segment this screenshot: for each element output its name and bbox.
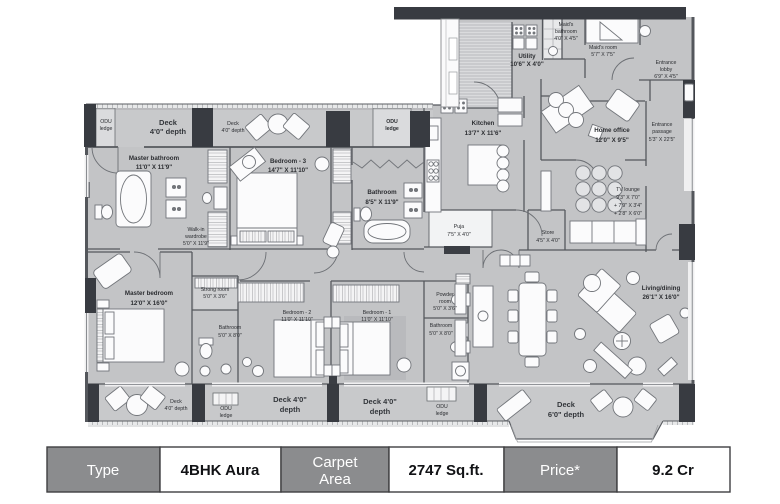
- svg-text:Walk-in: Walk-in: [187, 227, 204, 233]
- svg-text:5'0" X 11'9": 5'0" X 11'9": [183, 241, 209, 247]
- svg-text:Deck: Deck: [159, 118, 178, 127]
- svg-text:14'7" X 11'10": 14'7" X 11'10": [268, 167, 308, 174]
- svg-text:5'0" X 3'6": 5'0" X 3'6": [203, 294, 227, 300]
- svg-text:8'5" X 11'9": 8'5" X 11'9": [365, 199, 398, 206]
- svg-text:ODU: ODU: [100, 119, 112, 125]
- svg-text:Bedroom - 3: Bedroom - 3: [270, 158, 307, 165]
- svg-text:12'0" X 16'0": 12'0" X 16'0": [130, 300, 167, 307]
- svg-text:4'0" depth: 4'0" depth: [150, 127, 187, 136]
- svg-text:depth: depth: [370, 407, 391, 416]
- svg-text:Carpet: Carpet: [312, 454, 358, 471]
- svg-text:ledge: ledge: [436, 411, 449, 417]
- svg-text:5'0" X 8'0": 5'0" X 8'0": [429, 331, 453, 337]
- svg-text:Master bedroom: Master bedroom: [125, 290, 174, 297]
- svg-text:passage: passage: [652, 129, 672, 135]
- svg-text:11'0" X 11'9": 11'0" X 11'9": [136, 164, 172, 171]
- svg-text:Store: Store: [542, 230, 555, 236]
- svg-text:wardrobe: wardrobe: [185, 234, 207, 240]
- svg-text:Deck 4'0": Deck 4'0": [363, 397, 397, 406]
- svg-text:ODU: ODU: [220, 406, 232, 412]
- svg-text:ledge: ledge: [100, 126, 113, 132]
- svg-text:Area: Area: [319, 471, 351, 488]
- svg-text:5'0" X 8'0": 5'0" X 8'0": [218, 333, 242, 339]
- svg-text:Home office: Home office: [594, 127, 630, 134]
- svg-text:10'6" X 4'0": 10'6" X 4'0": [510, 61, 544, 68]
- svg-text:ledge: ledge: [220, 413, 233, 419]
- svg-text:11'0" X 11'10": 11'0" X 11'10": [281, 317, 313, 323]
- svg-text:Deck: Deck: [170, 399, 182, 405]
- svg-text:Bathroom: Bathroom: [367, 189, 397, 196]
- svg-text:5'3" X 22'5": 5'3" X 22'5": [649, 137, 676, 143]
- svg-text:13'7" X 11'6": 13'7" X 11'6": [465, 130, 502, 137]
- svg-text:TV lounge: TV lounge: [616, 187, 640, 193]
- svg-text:6'0" depth: 6'0" depth: [548, 410, 585, 419]
- svg-text:Bathroom: Bathroom: [219, 325, 242, 331]
- svg-text:Maid's: Maid's: [559, 22, 574, 28]
- svg-text:2747 Sq.ft.: 2747 Sq.ft.: [408, 462, 483, 479]
- svg-text:Puja: Puja: [454, 224, 464, 230]
- svg-text:ODU: ODU: [386, 119, 398, 125]
- svg-text:11'0" X 11'10": 11'0" X 11'10": [361, 317, 393, 323]
- svg-text:Entrance: Entrance: [652, 122, 673, 128]
- svg-text:Master bathroom: Master bathroom: [129, 155, 180, 162]
- svg-text:Deck: Deck: [557, 400, 576, 409]
- svg-text:+ 7'9" X 3'4": + 7'9" X 3'4": [614, 203, 642, 209]
- svg-text:Living/dining: Living/dining: [642, 285, 681, 292]
- svg-text:depth: depth: [280, 405, 301, 414]
- svg-text:4'0" X 4'5": 4'0" X 4'5": [554, 36, 578, 42]
- svg-text:7'5" X 4'0": 7'5" X 4'0": [447, 232, 471, 238]
- svg-text:Deck: Deck: [227, 121, 239, 127]
- svg-text:Strong room: Strong room: [201, 287, 230, 293]
- svg-text:Powder: Powder: [436, 292, 454, 298]
- svg-text:4'0" depth: 4'0" depth: [221, 128, 244, 134]
- svg-text:12'0" X 9'5": 12'0" X 9'5": [595, 137, 629, 144]
- svg-text:Bathroom: Bathroom: [430, 323, 453, 329]
- svg-text:bathroom: bathroom: [555, 29, 577, 35]
- svg-text:4'5" X 4'0": 4'5" X 4'0": [536, 238, 560, 244]
- svg-text:5'0" X 3'6": 5'0" X 3'6": [433, 306, 457, 312]
- svg-text:Deck 4'0": Deck 4'0": [273, 395, 307, 404]
- svg-text:9.2 Cr: 9.2 Cr: [652, 462, 694, 479]
- svg-text:4BHK Aura: 4BHK Aura: [181, 462, 260, 479]
- svg-text:room: room: [439, 299, 451, 305]
- svg-text:ledge: ledge: [385, 126, 399, 132]
- svg-text:4'0" depth: 4'0" depth: [164, 406, 187, 412]
- svg-text:5'7" X 7'5": 5'7" X 7'5": [591, 52, 615, 58]
- svg-text:ODU: ODU: [436, 404, 448, 410]
- svg-text:Bedroom - 1: Bedroom - 1: [363, 310, 392, 316]
- svg-text:Maid's room: Maid's room: [589, 45, 617, 51]
- svg-text:9'3" X 7'0": 9'3" X 7'0": [616, 195, 640, 201]
- svg-text:Bedroom - 2: Bedroom - 2: [283, 310, 312, 316]
- svg-text:Price*: Price*: [540, 462, 580, 479]
- svg-text:+ 2'8" X 6'0": + 2'8" X 6'0": [614, 211, 642, 217]
- svg-text:Kitchen: Kitchen: [472, 120, 495, 127]
- svg-text:6'9" X 4'5": 6'9" X 4'5": [654, 74, 678, 80]
- svg-text:26'1" X 16'0": 26'1" X 16'0": [642, 294, 679, 301]
- svg-text:lobby: lobby: [660, 67, 673, 73]
- svg-text:Utility: Utility: [518, 53, 536, 60]
- svg-text:Entrance: Entrance: [656, 60, 677, 66]
- svg-text:Type: Type: [87, 462, 120, 479]
